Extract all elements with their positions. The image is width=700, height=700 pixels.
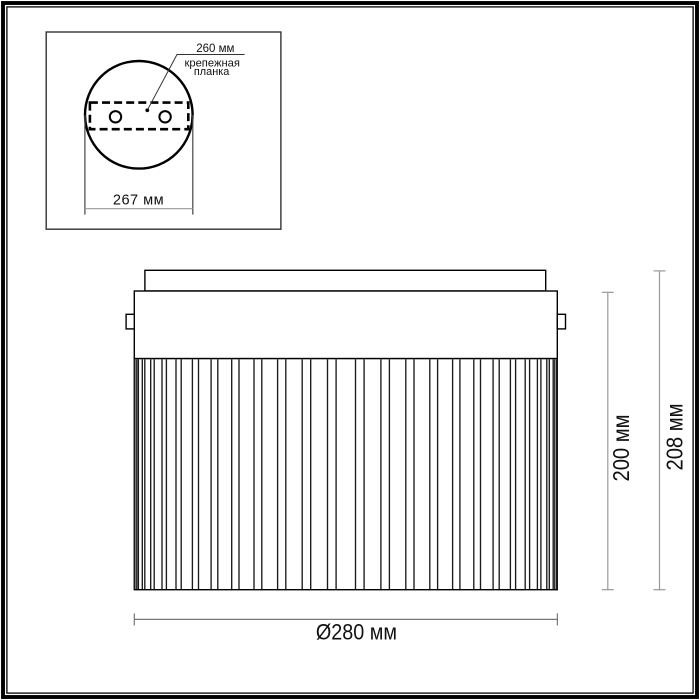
svg-text:планка: планка: [194, 66, 230, 78]
svg-text:267 мм: 267 мм: [113, 193, 164, 209]
svg-text:260 мм: 260 мм: [196, 43, 234, 55]
svg-text:200 мм: 200 мм: [608, 414, 635, 481]
svg-text:208 мм: 208 мм: [661, 403, 688, 470]
svg-text:Ø280 мм: Ø280 мм: [316, 621, 397, 645]
